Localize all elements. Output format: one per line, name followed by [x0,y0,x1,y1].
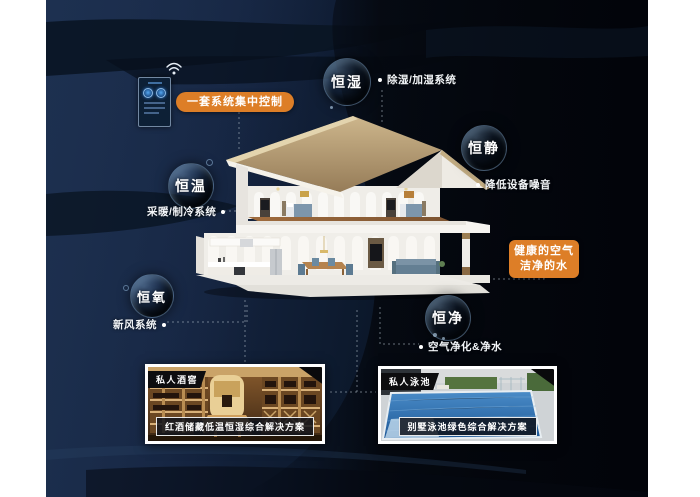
photo-caption: 别墅泳池绿色综合解决方案 [398,417,536,436]
bullet-dot [419,345,423,349]
bullet-dot [221,210,225,214]
label-hvac-system: 采暖/制冷系统 [147,204,225,219]
bullet-dot [476,183,480,187]
bullet-dot [162,323,166,327]
benefit-callout: 健康的空气 洁净的水 [509,240,579,278]
villa-cutaway-illustration [190,104,492,302]
decor-bubble [433,333,437,337]
bubble-constant-purity: 恒净 [425,295,471,341]
photo-wine-cellar: 私人酒窖 红酒储藏低温恒湿综合解决方案 [145,364,325,444]
benefit-line2: 洁净的水 [513,259,575,274]
panel-row [144,107,165,109]
panel-row [144,112,159,114]
bubble-constant-humidity: 恒湿 [323,58,371,106]
panel-button-icon [143,88,153,98]
label-fresh-air-system: 新风系统 [113,317,166,332]
benefit-line1: 健康的空气 [513,244,575,259]
bubble-constant-quiet: 恒静 [461,125,507,171]
label-air-water-purification: 空气净化&净水 [419,339,502,354]
bullet-dot [378,78,382,82]
bubble-constant-oxygen: 恒氧 [130,274,174,318]
label-text: 新风系统 [113,317,157,332]
wifi-icon [165,61,183,76]
decor-bubble [330,106,333,109]
decor-bubble [123,285,129,291]
smart-home-infographic: 一套系统集中控制 健康的空气 洁净的水 恒湿 恒静 恒温 恒氧 恒净 除湿/加湿… [0,0,700,497]
label-text: 降低设备噪音 [485,177,551,192]
panel-header-bar [148,82,162,84]
photo-caption: 红酒储藏低温恒湿综合解决方案 [156,417,314,436]
label-noise-reduction: 降低设备噪音 [476,177,551,192]
panel-button-icon [156,88,166,98]
central-control-callout: 一套系统集中控制 [176,92,294,112]
label-text: 除湿/加湿系统 [387,72,456,87]
photo-private-pool: 私人泳池 别墅泳池绿色综合解决方案 [378,366,557,444]
bubble-constant-temperature: 恒温 [168,163,214,209]
label-text: 采暖/制冷系统 [147,204,216,219]
photo-tag: 私人酒窖 [148,371,206,388]
decor-bubble [206,159,213,166]
photo-tag: 私人泳池 [381,373,439,390]
label-humidity-system: 除湿/加湿系统 [378,72,456,87]
panel-row [144,102,165,104]
smart-control-panel [138,77,171,127]
label-text: 空气净化&净水 [428,339,502,354]
